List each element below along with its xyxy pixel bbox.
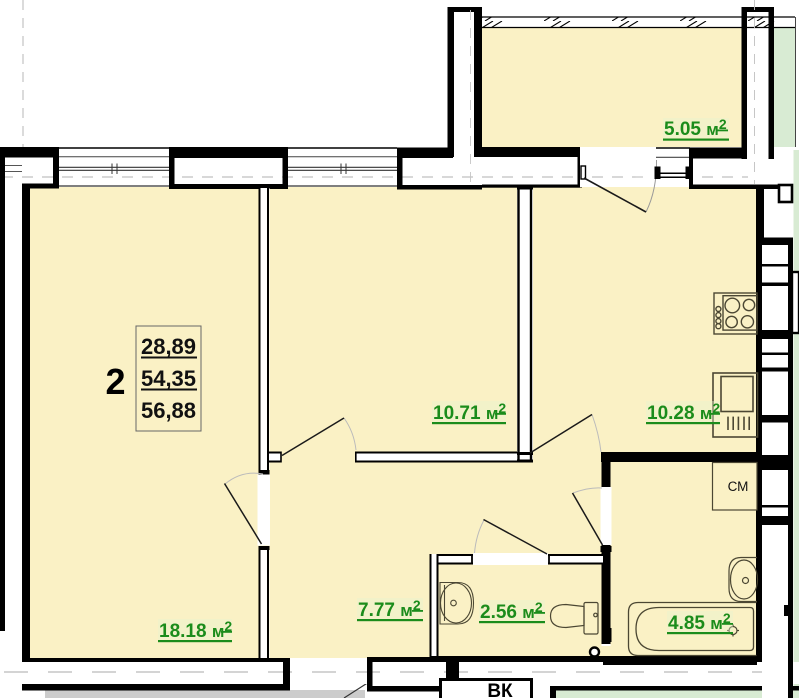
svg-text:18.18 м2: 18.18 м2 <box>159 618 232 642</box>
svg-text:ВК: ВК <box>487 681 513 698</box>
svg-text:4.85 м2: 4.85 м2 <box>668 610 731 634</box>
svg-text:10.71 м2: 10.71 м2 <box>433 400 506 424</box>
svg-text:54,35: 54,35 <box>141 366 196 391</box>
svg-text:2.56 м2: 2.56 м2 <box>480 599 543 623</box>
svg-text:2: 2 <box>105 361 125 402</box>
svg-text:СМ: СМ <box>728 479 749 494</box>
svg-text:10.28 м2: 10.28 м2 <box>647 400 720 424</box>
svg-text:5.05 м2: 5.05 м2 <box>664 116 727 140</box>
svg-text:28,89: 28,89 <box>141 334 196 359</box>
svg-text:56,88: 56,88 <box>141 398 196 423</box>
svg-text:7.77 м2: 7.77 м2 <box>358 597 421 621</box>
